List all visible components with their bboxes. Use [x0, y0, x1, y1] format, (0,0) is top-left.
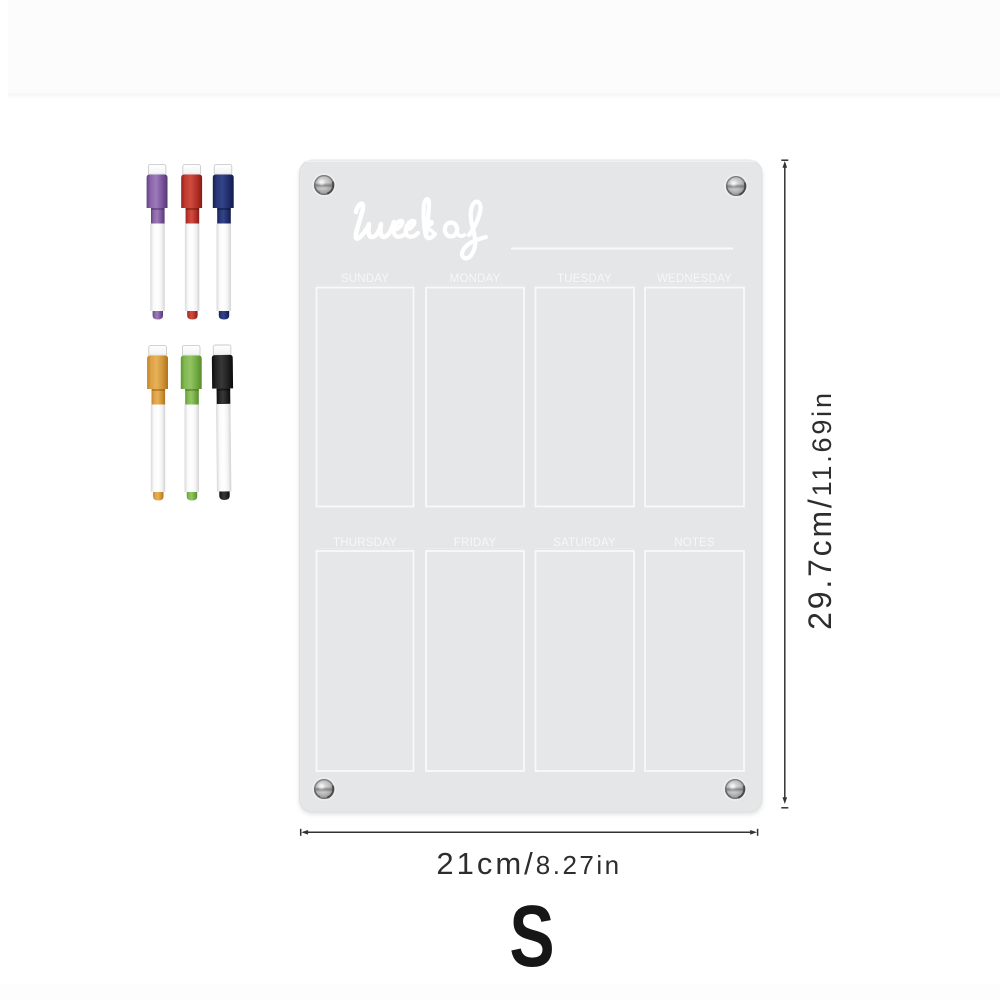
- svg-text:SATURDAY: SATURDAY: [553, 537, 616, 549]
- svg-text:FRIDAY: FRIDAY: [454, 537, 497, 549]
- svg-text:21cm/8.27in: 21cm/8.27in: [436, 846, 621, 881]
- svg-text:TUESDAY: TUESDAY: [557, 273, 612, 285]
- svg-text:S: S: [509, 887, 554, 985]
- svg-text:MONDAY: MONDAY: [450, 273, 501, 285]
- svg-text:SUNDAY: SUNDAY: [341, 273, 389, 285]
- svg-text:29.7cm/11.69in: 29.7cm/11.69in: [802, 390, 838, 630]
- svg-text:NOTES: NOTES: [674, 537, 715, 549]
- svg-text:THURSDAY: THURSDAY: [333, 537, 397, 549]
- svg-text:WEDNESDAY: WEDNESDAY: [657, 273, 732, 285]
